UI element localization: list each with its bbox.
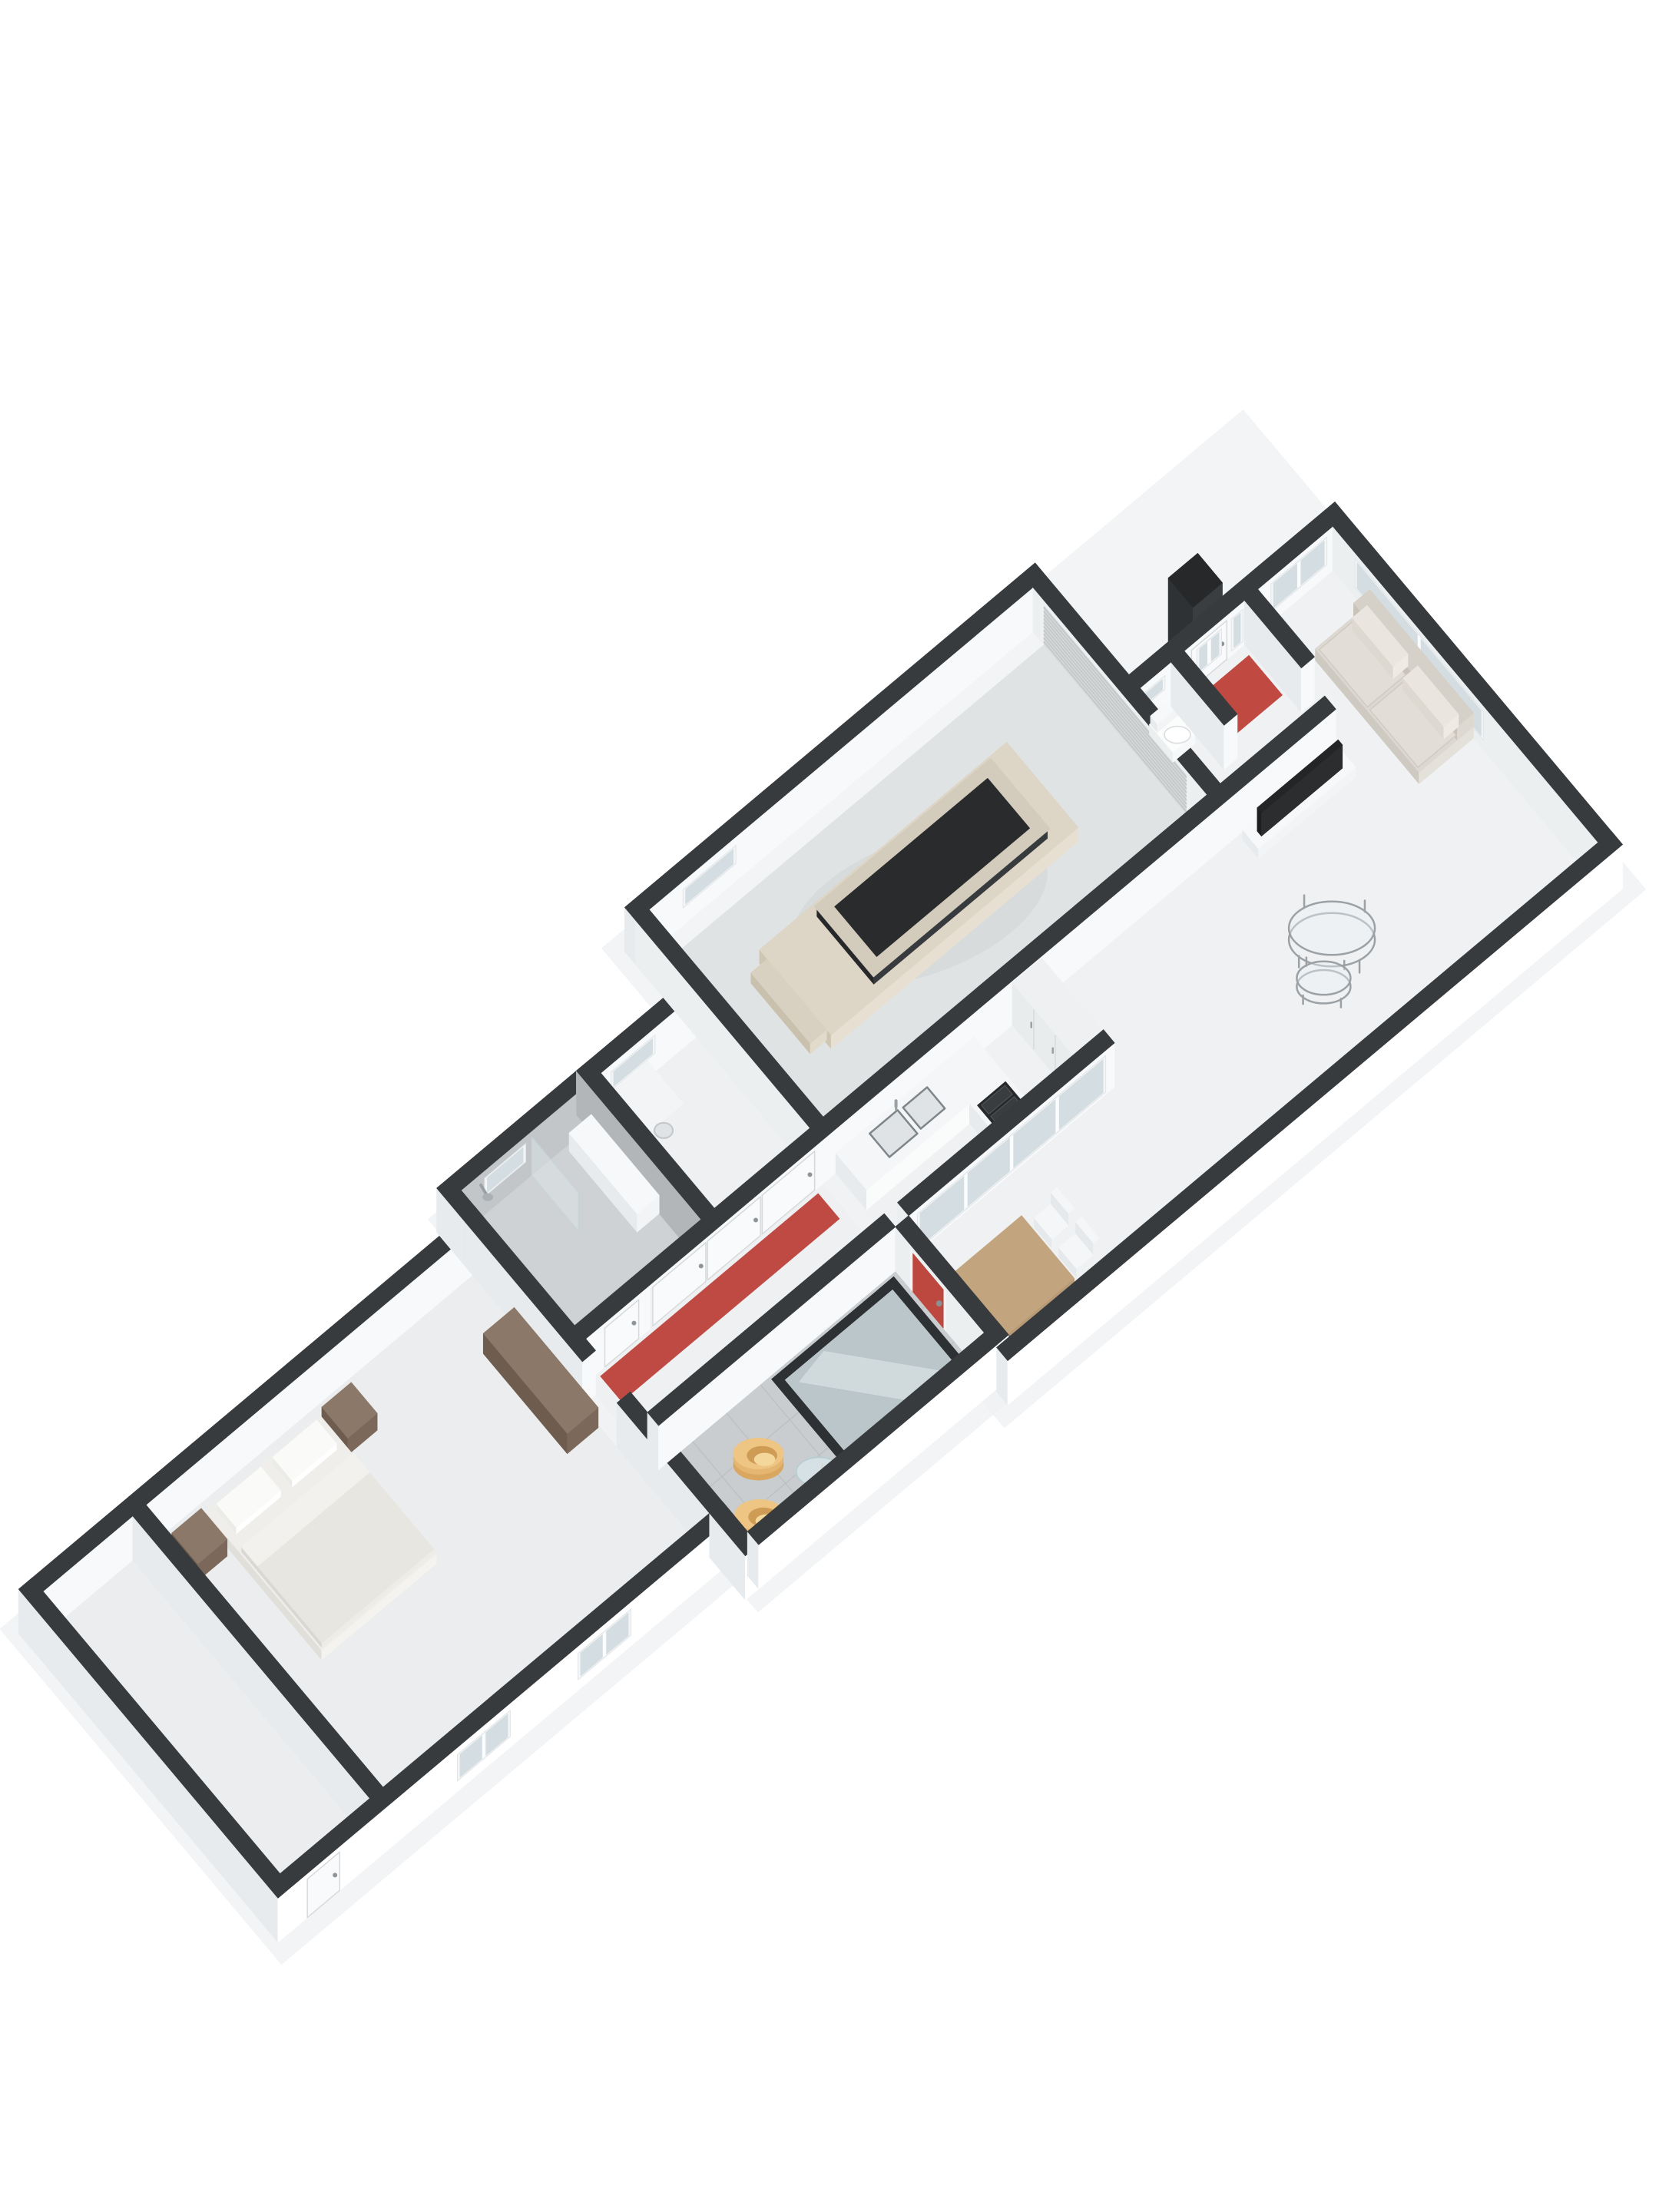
patio-armchair-seat (754, 1453, 776, 1466)
living-room-front-window-mullion (1297, 561, 1300, 588)
front-door-sidelight-glass (1234, 613, 1241, 647)
closet-sliding-door-handle (807, 1172, 812, 1177)
bedroom-window-mullion (603, 1632, 606, 1657)
storage-exterior-door-handle (333, 1873, 337, 1877)
wire-coffee-table-top (1289, 902, 1375, 955)
front-door-glass-mullion (1207, 640, 1210, 664)
floorplan-image (0, 0, 1659, 2212)
toilet-seat (1164, 727, 1190, 743)
floorplan-3d-render (0, 0, 1659, 2212)
bathroom-door-handle (631, 1321, 636, 1326)
kitchen-patio-window-mullion (1010, 1135, 1013, 1171)
patio-door-handle (936, 1300, 942, 1306)
closet-sliding-door-handle (699, 1263, 704, 1268)
bedroom-window-mullion (482, 1733, 485, 1758)
kitchen-patio-window-mullion (1056, 1097, 1059, 1132)
wire-side-table-top (1296, 962, 1350, 995)
closet-sliding-door-handle (753, 1218, 758, 1223)
shower-head (482, 1194, 493, 1201)
washing-machine-door (654, 1123, 673, 1138)
kitchen-patio-window-mullion (965, 1174, 968, 1209)
